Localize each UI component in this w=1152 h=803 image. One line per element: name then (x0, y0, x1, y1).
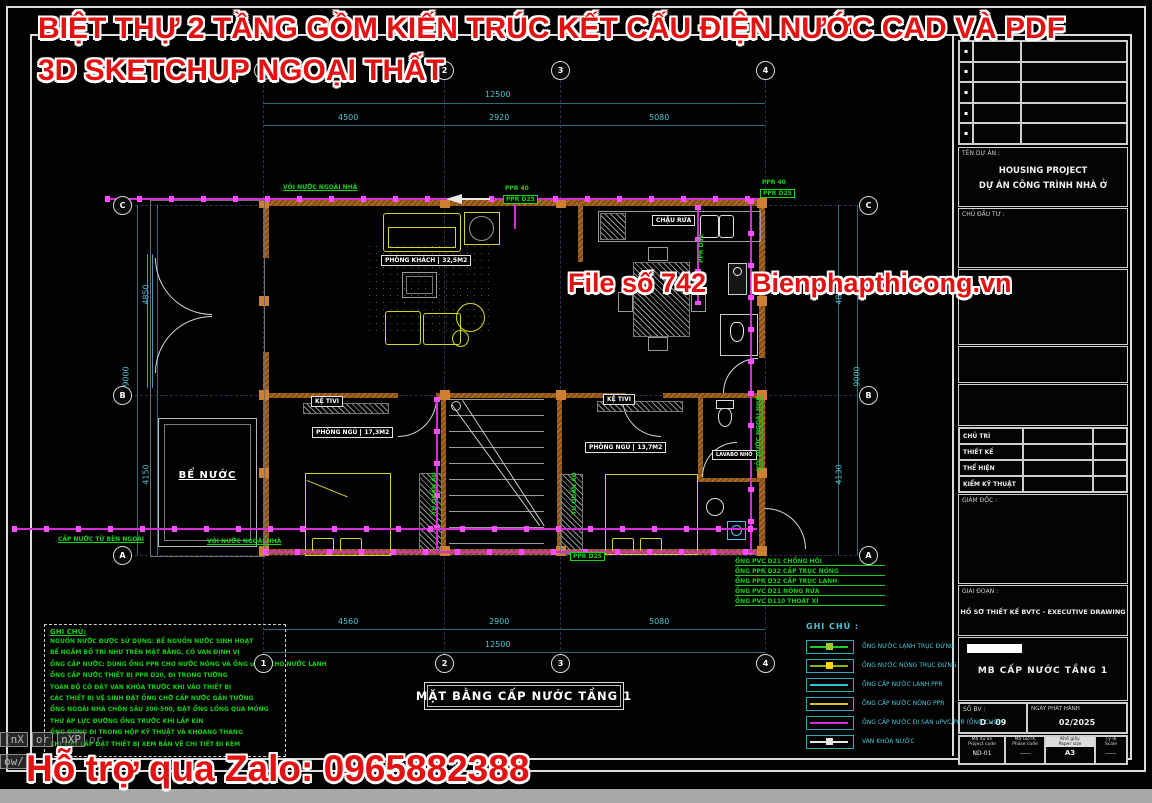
project-name-en: HOUSING PROJECT (959, 164, 1127, 179)
label-outdoor-faucet-right: VỎI NƯỚC NGOÀI NHÀ (756, 396, 763, 470)
column (556, 390, 566, 400)
legend-title: GHI CHÚ : (806, 622, 951, 631)
revision-symbol: ▪ (959, 103, 973, 124)
pipe-callout: ỐNG PPR D32 CẤP TRỤC NÓNG (735, 568, 885, 576)
legend-symbol-floor-pipe (806, 716, 854, 730)
cad-token: ow/ (0, 754, 28, 769)
revision-symbol: ▪ (959, 123, 973, 144)
legend-symbol-valve (806, 735, 854, 749)
footer-value: ND-01 (973, 750, 992, 757)
staff-cell (1093, 444, 1127, 460)
staff-role: KIỂM KỸ THUẬT (959, 476, 1023, 492)
drawing-name-bar (967, 644, 1022, 653)
label-tv-shelf-1: KỆ TIVI (311, 396, 343, 407)
footer-value: A3 (1065, 749, 1075, 757)
legend-label: ỐNG NƯỚC LẠNH TRỤC ĐỨNG (862, 643, 955, 650)
cad-token: or (32, 732, 53, 747)
legend-label: VAN KHÓA NƯỚC (862, 738, 915, 745)
dim-bottom-2: 2900 (489, 617, 509, 626)
note-line: TOÀN BỘ CÓ ĐẶT VAN KHÓA TRƯỚC KHI VÀO TH… (50, 682, 280, 693)
legend-label: ỐNG CẤP NƯỚC ĐI SÀN uPVC/PPR (ỐNG CHỜ) (862, 719, 1001, 726)
dim-line-bottom-total (263, 652, 765, 653)
grid-bubble-B-right: B (859, 386, 878, 405)
note-line: ỐNG NGOÀI NHÀ CHÔN SÂU 300-500, ĐẶT ỐNG … (50, 704, 280, 715)
dim-top-3: 5080 (649, 113, 669, 122)
sheet-number-label: SỐ BV : (963, 706, 985, 713)
watermark-title-line1: BIỆT THỰ 2 TẦNG GỒM KIẾN TRÚC KẾT CẤU ĐI… (38, 12, 1065, 46)
revision-symbol: ▪ (959, 82, 973, 103)
phase-box: GIAI ĐOẠN : HỒ SƠ THIẾT KẾ BVTC - EXECUT… (958, 585, 1128, 636)
revision-cell (973, 62, 1021, 83)
dim-right-2: 4130 (835, 464, 844, 484)
label-ppr40-1: PPR 40 (505, 185, 529, 192)
staff-table: CHỦ TRÌ THIẾT KẾ THỂ HIỆN KIỂM KỸ THUẬT (958, 427, 1128, 493)
director-box: GIÁM ĐỐC : (958, 494, 1128, 584)
issue-date-label: NGÀY PHÁT HÀNH (1031, 706, 1080, 712)
room-area: 17,3M2 (360, 429, 389, 436)
cad-token: nXP (57, 732, 85, 747)
footer-label-en: Phase code (1012, 742, 1038, 747)
revision-cell (973, 103, 1021, 124)
pipe-bottom-run-1 (12, 526, 757, 532)
pipe-callout: ỐNG PVC D110 THOÁT XÍ (735, 598, 885, 606)
flow-arrow-head (446, 194, 462, 204)
cad-command-line-1: (nXornXPor (0, 728, 102, 747)
pipe-callouts: ỐNG PVC D21 CHỐNG HÔI ỐNG PPR D32 CẤP TR… (735, 558, 885, 608)
staff-cell (1023, 428, 1093, 444)
dim-top-1: 4500 (338, 113, 358, 122)
note-line: ỐNG CẤP NƯỚC: DÙNG ỐNG PPR CHO NƯỚC NÓNG… (50, 659, 280, 670)
flow-arrow-tail (462, 198, 490, 200)
grid-bubble-2-bottom: 2 (435, 654, 454, 673)
pipe-callout: ỐNG PPR D32 CẤP TRỤC LẠNH (735, 578, 885, 586)
grid-line-col2 (444, 80, 445, 665)
dining-chair (648, 337, 668, 351)
label-ppr25-2: PPR D25 (760, 189, 795, 198)
label-ppr40-2: PPR 40 (762, 179, 786, 186)
grid-bubble-C-left: C (113, 196, 132, 215)
grid-bubble-4-top: 4 (756, 61, 775, 80)
plan-title-box: MẶT BẰNG CẤP NƯỚC TẦNG 1 (427, 685, 621, 707)
label-supply-inlet: CẤP NƯỚC TỪ BÊN NGOÀI (58, 536, 144, 543)
label-lavabo: LAVABO NHỎ (712, 450, 757, 460)
legend-label: ỐNG NƯỚC NÓNG TRỤC ĐỨNG (862, 662, 957, 669)
label-wardrobe-1: TỦ QUẦN ÁO (431, 472, 438, 515)
drawing-name: MB CẤP NƯỚC TẦNG 1 (959, 666, 1127, 676)
wall-mid-2 (436, 393, 626, 398)
pipe-right-riser (748, 199, 754, 554)
footer-label-en: Paper size (1059, 742, 1082, 747)
notes-title: GHI CHÚ: (50, 628, 280, 636)
note-line: THỬ ÁP LỰC ĐƯỜNG ỐNG TRƯỚC KHI LẤP KÍN (50, 716, 280, 727)
small-wc-toilet (730, 322, 744, 342)
wall-kitchen (578, 200, 583, 262)
phase-value: HỒ SƠ THIẾT KẾ BVTC - EXECUTIVE DRAWING (959, 608, 1127, 616)
legend: GHI CHÚ : ỐNG NƯỚC LẠNH TRỤC ĐỨNG ỐNG NƯ… (806, 622, 951, 757)
footer-value: ----- (1020, 750, 1031, 757)
note-line: CÁC THIẾT BỊ VỆ SINH ĐẶT ỐNG CHỜ CẤP NƯỚ… (50, 693, 280, 704)
room-name: PHÒNG NGỦ (316, 429, 357, 436)
investor-box: CHỦ ĐẦU TƯ : (958, 208, 1128, 268)
sofa-large-seat (388, 227, 456, 248)
cad-token: or (89, 733, 102, 746)
watermark-title-line2: 3D SKETCHUP NGOẠI THẤT (38, 54, 444, 88)
kitchen-sink-bowl-2 (719, 215, 734, 238)
revision-cell (1021, 62, 1127, 83)
revision-cell (1021, 82, 1127, 103)
dim-right-total: 9000 (853, 366, 862, 386)
legend-label: ỐNG CẤP NƯỚC LẠNH PPR (862, 681, 943, 688)
revision-cell (1021, 123, 1127, 144)
column (757, 198, 767, 208)
room-area: 32,5M2 (438, 257, 467, 264)
revision-table: ▪ ▪ ▪ ▪ ▪ (958, 40, 1128, 145)
label-tv-shelf-2: KỆ TIVI (603, 394, 635, 405)
footer-label-en: Scale (1105, 742, 1117, 747)
grid-bubble-3-bottom: 3 (551, 654, 570, 673)
grid-bubble-B-left: B (113, 386, 132, 405)
round-table (456, 303, 485, 332)
room-label-bed2: PHÒNG NGỦ 13,7M2 (585, 442, 666, 453)
dim-left-total: 9000 (122, 366, 131, 386)
legend-label: ỐNG CẤP NƯỚC NÓNG PPR (862, 700, 944, 707)
staff-role: THỂ HIỆN (959, 460, 1023, 476)
staff-cell (1023, 444, 1093, 460)
label-ppr25-1: PPR D25 (503, 195, 538, 204)
grid-bubble-4-bottom: 4 (756, 654, 775, 673)
project-name-vi: DỰ ÁN CÔNG TRÌNH NHÀ Ở (959, 179, 1127, 194)
pipe-callout: ỐNG PVC D21 NÓNG RỬA (735, 588, 885, 596)
label-outdoor-faucet-top: VỎI NƯỚC NGOÀI NHÀ (283, 184, 357, 191)
cad-token: (nX (0, 732, 28, 747)
dim-line-bottom-seg (263, 629, 765, 630)
dim-line-top-total (263, 103, 765, 104)
staff-cell (1093, 460, 1127, 476)
staff-cell (1023, 460, 1093, 476)
revision-cell (1021, 103, 1127, 124)
grid-bubble-1-bottom: 1 (254, 654, 273, 673)
pipe-top-run (105, 196, 758, 202)
room-label-bed1: PHÒNG NGỦ 17,3M2 (312, 427, 393, 438)
watermark-zalo: Hỗ trợ qua Zalo: 0965882388 (26, 748, 529, 790)
staff-cell (1093, 476, 1127, 492)
water-tank-inner (164, 424, 251, 541)
footer-value: ----- (1106, 750, 1117, 757)
pipe-callout: ỐNG PVC D21 CHỐNG HÔI (735, 558, 885, 566)
room-area: 13,7M2 (633, 444, 662, 451)
room-name: PHÒNG KHÁCH (385, 257, 435, 264)
staff-cell (1093, 428, 1127, 444)
project-name-box: TÊN DỰ ÁN : HOUSING PROJECT DỰ ÁN CÔNG T… (958, 147, 1128, 207)
empty-box-2 (958, 346, 1128, 383)
label-wardrobe-2: TỦ QUẦN ÁO (571, 472, 578, 515)
dim-top-2: 2920 (489, 113, 509, 122)
room-label-living: PHÒNG KHÁCH 32,5M2 (381, 255, 471, 266)
revision-symbol: ▪ (959, 62, 973, 83)
dim-bottom-1: 4560 (338, 617, 358, 626)
titleblock: ▪ ▪ ▪ ▪ ▪ TÊN DỰ ÁN : HOUSING PROJECT DỰ… (956, 38, 1128, 754)
watermark-file-no: File số 742 (568, 268, 706, 299)
grid-bubble-A-left: A (113, 546, 132, 565)
project-name-label: TÊN DỰ ÁN : (962, 150, 1000, 157)
dim-line-right-seg (838, 205, 839, 555)
plant-circle (469, 216, 494, 241)
revision-cell (973, 82, 1021, 103)
grid-line-col3 (560, 80, 561, 665)
dim-line-left-total (137, 205, 138, 555)
kitchen-stove (600, 213, 626, 240)
toilet-bowl (718, 408, 732, 427)
sheet-number-row: SỐ BV : D - 09 NGÀY PHÁT HÀNH 02/2025 (958, 702, 1128, 734)
cad-sheet: ▪ ▪ ▪ ▪ ▪ TÊN DỰ ÁN : HOUSING PROJECT DỰ… (0, 0, 1152, 803)
titleblock-footer: Mã dự ánProject code ND-01 Mã GĐTKPhase … (958, 735, 1128, 765)
dim-bottom-total: 12500 (485, 640, 510, 649)
stairs-newel (451, 401, 461, 411)
lavabo-small-circle (706, 498, 724, 516)
director-label: GIÁM ĐỐC : (962, 497, 997, 504)
drawing-name-box: MB CẤP NƯỚC TẦNG 1 (958, 637, 1128, 701)
dining-chair (648, 247, 668, 261)
legend-symbol-cold-riser (806, 640, 854, 654)
coffee-table-inner (406, 276, 433, 294)
label-sink: CHẬU RỬA (652, 215, 695, 226)
investor-label: CHỦ ĐẦU TƯ : (962, 211, 1005, 218)
label-ppr32-kitchen: PPR D32 (698, 234, 705, 263)
empty-box-3 (958, 384, 1128, 426)
label-outdoor-faucet-bottom: VỎI NƯỚC NGOÀI NHÀ (207, 538, 281, 545)
dim-line-top-seg (263, 125, 765, 126)
window-double-line (147, 254, 153, 388)
armchair-1 (385, 311, 421, 345)
legend-symbol-hot-riser (806, 659, 854, 673)
grid-bubble-C-right: C (859, 196, 878, 215)
revision-cell (973, 123, 1021, 144)
staff-role: THIẾT KẾ (959, 444, 1023, 460)
dim-bottom-3: 5080 (649, 617, 669, 626)
water-tank-label: BỂ NƯỚC (170, 470, 245, 481)
staff-cell (1023, 476, 1093, 492)
phase-label: GIAI ĐOẠN : (962, 588, 998, 595)
note-line: NGUỒN NƯỚC ĐƯỢC SỬ DỤNG: BỂ NGUỒN NƯỚC S… (50, 636, 280, 647)
footer-label-en: Project code (968, 742, 996, 747)
legend-symbol-hot-pipe (806, 697, 854, 711)
room-name: PHÒNG NGỦ (589, 444, 630, 451)
water-heater-dial (733, 267, 742, 276)
staff-role: CHỦ TRÌ (959, 428, 1023, 444)
label-ppr25-3: PPR D25 (570, 552, 605, 561)
note-line: BỂ NGẦM BỐ TRÍ NHƯ TRÊN MẶT BẰNG, CÓ VAN… (50, 647, 280, 658)
grid-bubble-3-top: 3 (551, 61, 570, 80)
pipe-bottom-run-2 (263, 549, 757, 555)
note-line: ỐNG CẤP NƯỚC THIẾT BỊ PPR D20, ĐI TRONG … (50, 670, 280, 681)
dim-top-total: 12500 (485, 90, 510, 99)
round-stool (452, 330, 469, 347)
window-bottom-band (0, 789, 1152, 803)
legend-symbol-cold-pipe (806, 678, 854, 692)
issue-date: 02/2025 (1059, 718, 1095, 727)
watermark-site: Bienphapthicong.vn (752, 268, 1012, 299)
